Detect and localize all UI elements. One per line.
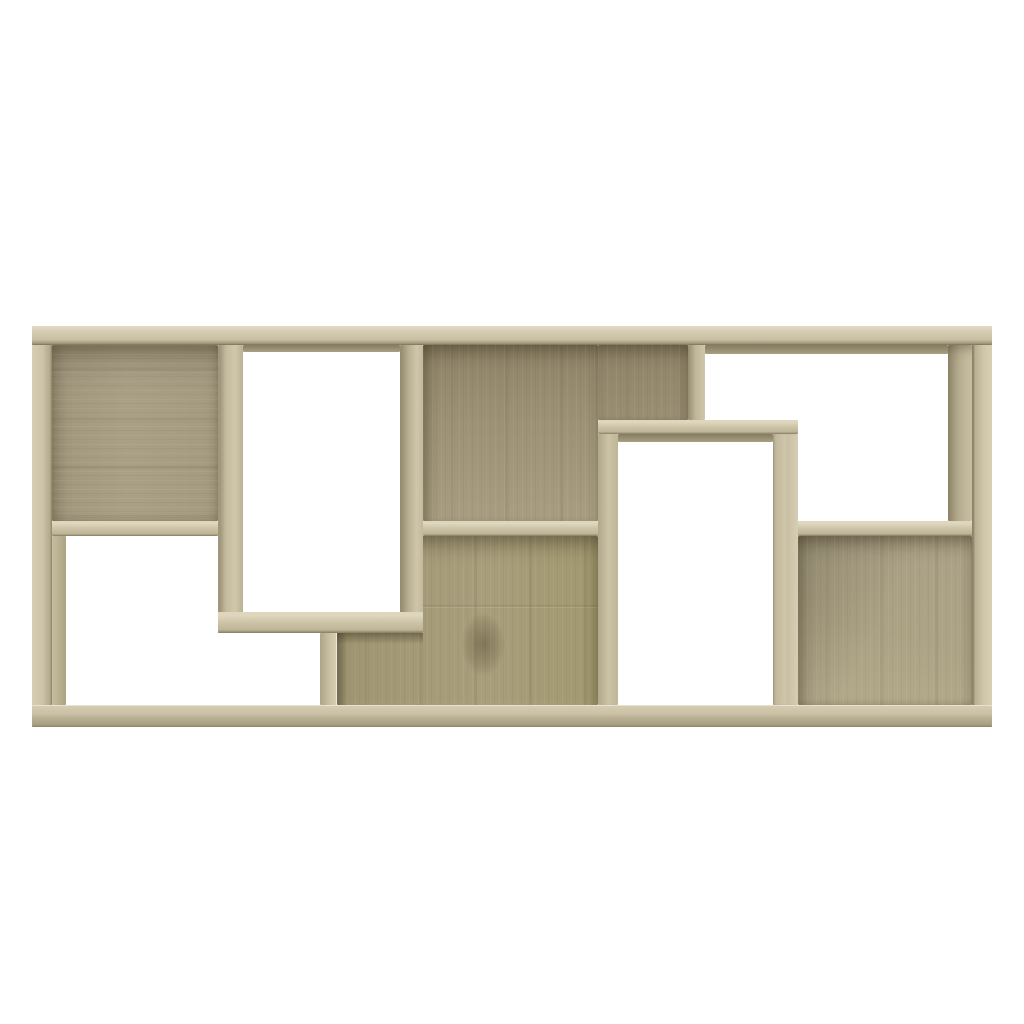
divider-top-right — [688, 345, 705, 420]
product-photo — [0, 0, 1024, 1024]
mid-shelf-center — [423, 521, 598, 536]
top-panel — [32, 326, 992, 345]
box1-left-wall — [218, 345, 243, 633]
box1-bottom-panel — [218, 612, 423, 633]
right-panel-inner-face — [948, 345, 972, 521]
mid-shelf-right — [798, 521, 972, 536]
bottom-panel — [32, 705, 992, 727]
bookcase — [32, 326, 992, 727]
back-panel-center-upper — [423, 345, 598, 521]
back-panel-top-left — [52, 345, 218, 521]
top-panel-underside-right — [705, 345, 948, 354]
right-side-panel — [972, 326, 992, 727]
shade-under-box1-bottom — [337, 633, 423, 644]
box1-right-wall — [400, 345, 423, 633]
box2-left-wall — [598, 434, 618, 705]
shade-right-of-divider — [337, 633, 348, 705]
back-panel-bottom-right — [798, 536, 972, 705]
divider-bottom-left — [320, 633, 337, 705]
left-panel-inner-face — [52, 536, 66, 705]
box2-right-wall — [773, 434, 798, 705]
back-panel-above-box2 — [598, 345, 688, 420]
mid-shelf-left — [52, 521, 218, 536]
box2-top-underside — [618, 434, 773, 442]
top-panel-underside-box1 — [243, 345, 400, 352]
left-side-panel — [32, 326, 52, 727]
box2-top-panel — [598, 420, 798, 434]
